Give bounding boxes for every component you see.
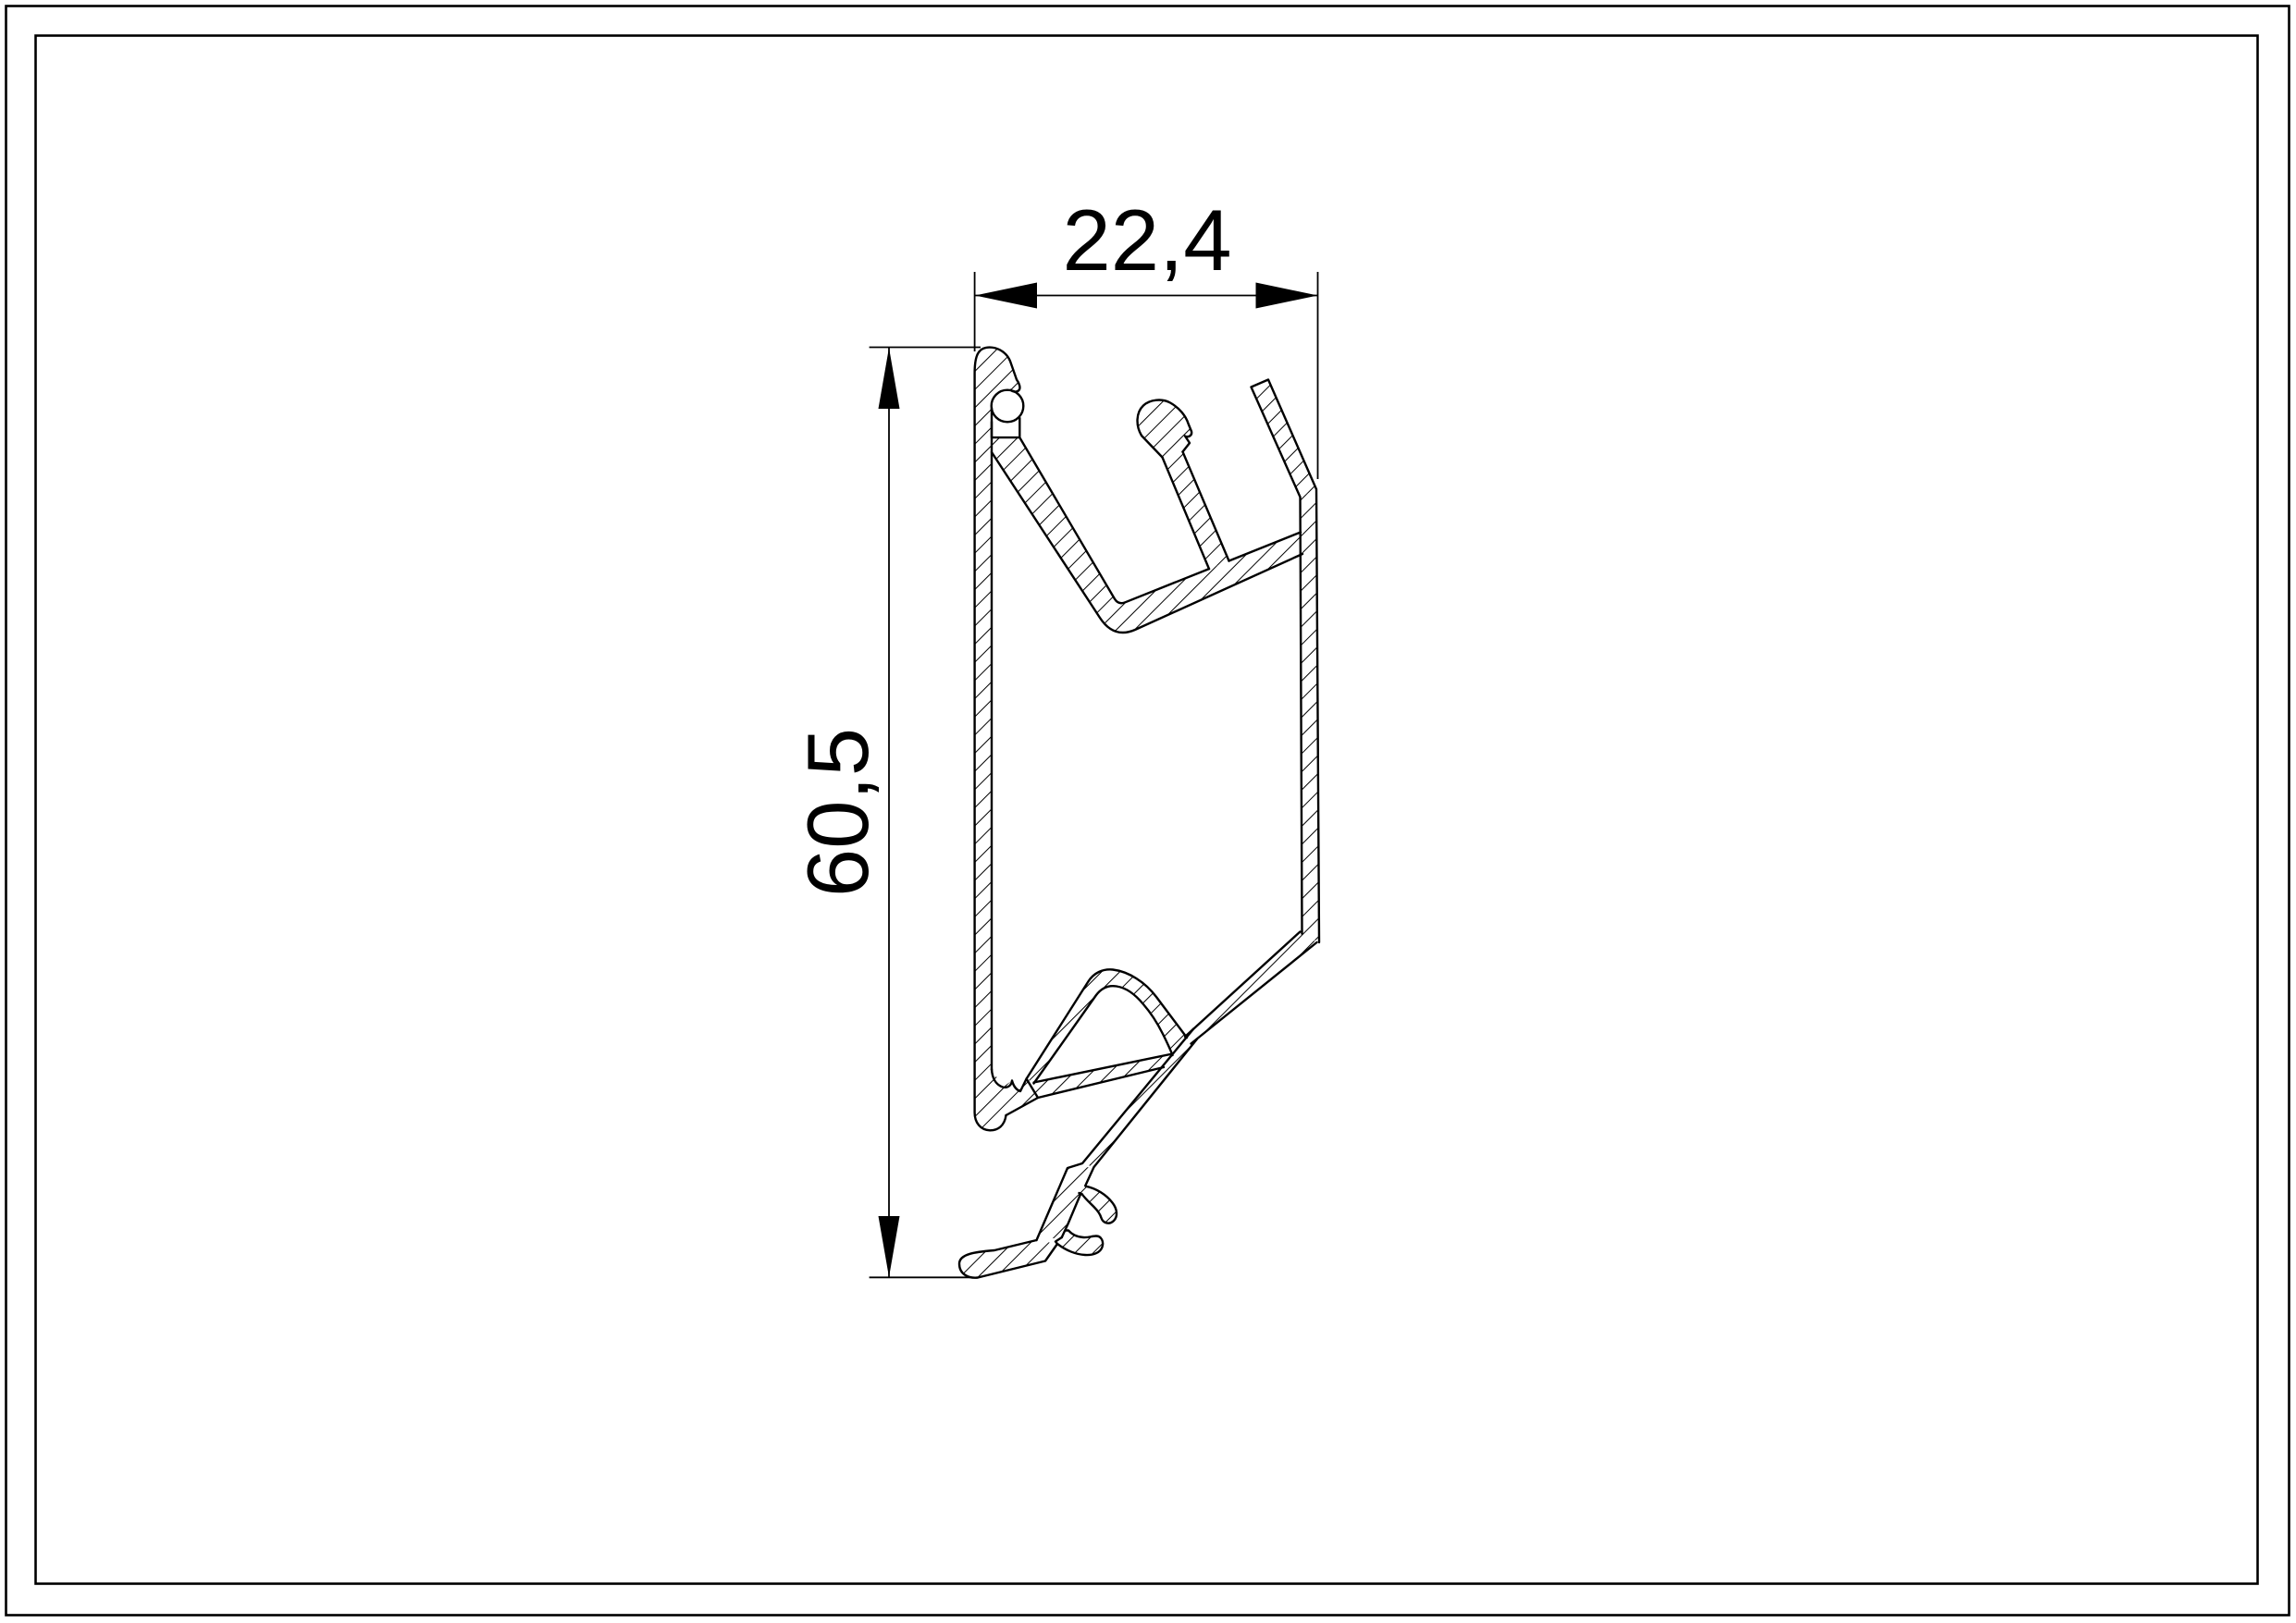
- svg-text:22,4: 22,4: [1063, 191, 1232, 289]
- svg-text:60,5: 60,5: [789, 728, 886, 897]
